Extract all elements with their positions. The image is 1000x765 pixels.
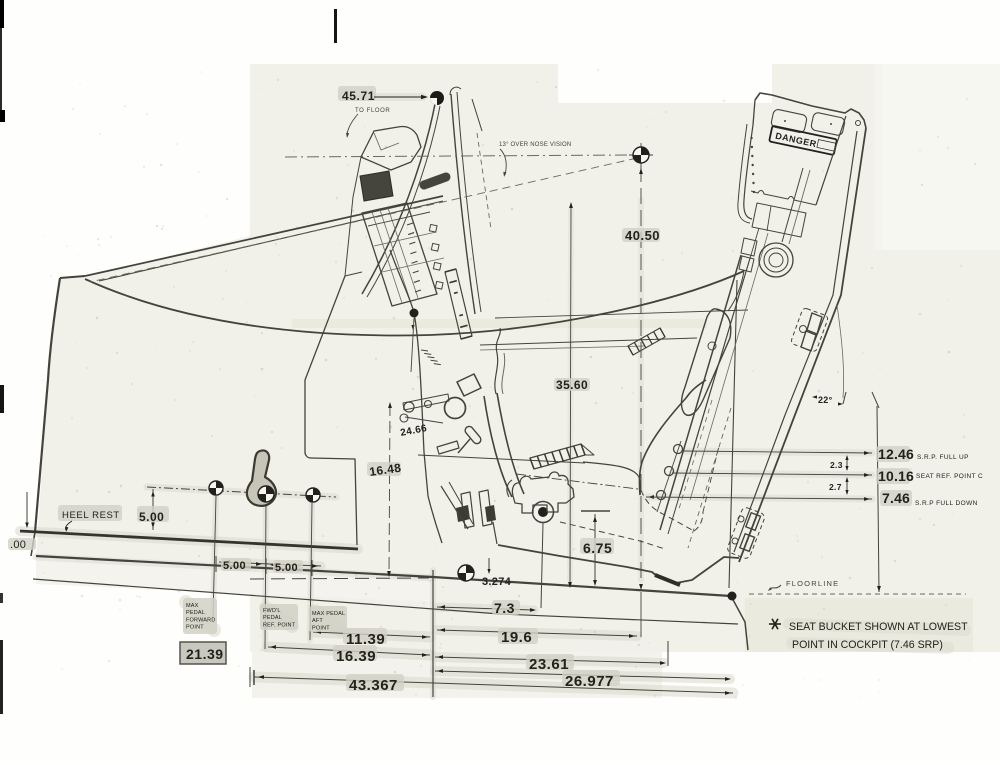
svg-text:MAX: MAX	[186, 603, 199, 609]
svg-text:MAX PEDAL: MAX PEDAL	[312, 611, 345, 617]
svg-text:5.00: 5.00	[275, 562, 298, 574]
svg-text:PEDAL: PEDAL	[186, 610, 205, 616]
svg-text:13° OVER NOSE VISION: 13° OVER NOSE VISION	[499, 142, 571, 148]
svg-text:POINT IN COCKPIT (7.46 SRP): POINT IN COCKPIT (7.46 SRP)	[792, 639, 943, 651]
svg-text:POINT: POINT	[186, 625, 204, 631]
svg-text:FWD'L: FWD'L	[263, 608, 281, 614]
svg-text:FLOORLINE: FLOORLINE	[786, 579, 839, 588]
svg-text:.00: .00	[10, 539, 26, 551]
svg-text:40.50: 40.50	[625, 228, 660, 243]
svg-text:2.7: 2.7	[829, 482, 842, 492]
svg-text:FORWARD: FORWARD	[186, 617, 216, 623]
svg-text:5.00: 5.00	[139, 510, 164, 524]
svg-text:5.00: 5.00	[223, 560, 246, 572]
svg-text:43.367: 43.367	[349, 677, 398, 694]
svg-text:AFT: AFT	[312, 618, 323, 624]
svg-text:45.71: 45.71	[342, 89, 375, 103]
svg-text:35.60: 35.60	[556, 378, 588, 392]
svg-text:10.16: 10.16	[878, 468, 914, 484]
svg-text:6.75: 6.75	[583, 540, 612, 556]
svg-text:HEEL REST: HEEL REST	[62, 510, 120, 521]
svg-text:POINT: POINT	[312, 625, 330, 631]
svg-text:22°: 22°	[818, 395, 833, 405]
svg-text:SEAT REF. POINT C: SEAT REF. POINT C	[916, 473, 983, 480]
svg-text:12.46: 12.46	[878, 446, 914, 462]
svg-text:TO FLOOR: TO FLOOR	[355, 108, 390, 114]
svg-text:2.3: 2.3	[830, 460, 843, 470]
svg-text:PEDAL: PEDAL	[263, 615, 282, 621]
svg-text:7.3: 7.3	[494, 600, 515, 616]
svg-text:REF. POINT: REF. POINT	[263, 622, 296, 628]
svg-text:21.39: 21.39	[186, 646, 224, 662]
svg-text:3.274: 3.274	[482, 576, 512, 588]
svg-text:S.R.P. FULL UP: S.R.P. FULL UP	[917, 454, 969, 461]
svg-text:SEAT BUCKET SHOWN AT LOWEST: SEAT BUCKET SHOWN AT LOWEST	[789, 621, 968, 633]
svg-text:S.R.P FULL DOWN: S.R.P FULL DOWN	[915, 500, 978, 507]
svg-text:23.61: 23.61	[529, 656, 569, 673]
svg-text:7.46: 7.46	[882, 490, 910, 506]
svg-text:16.39: 16.39	[336, 648, 376, 665]
svg-text:19.6: 19.6	[501, 629, 532, 646]
